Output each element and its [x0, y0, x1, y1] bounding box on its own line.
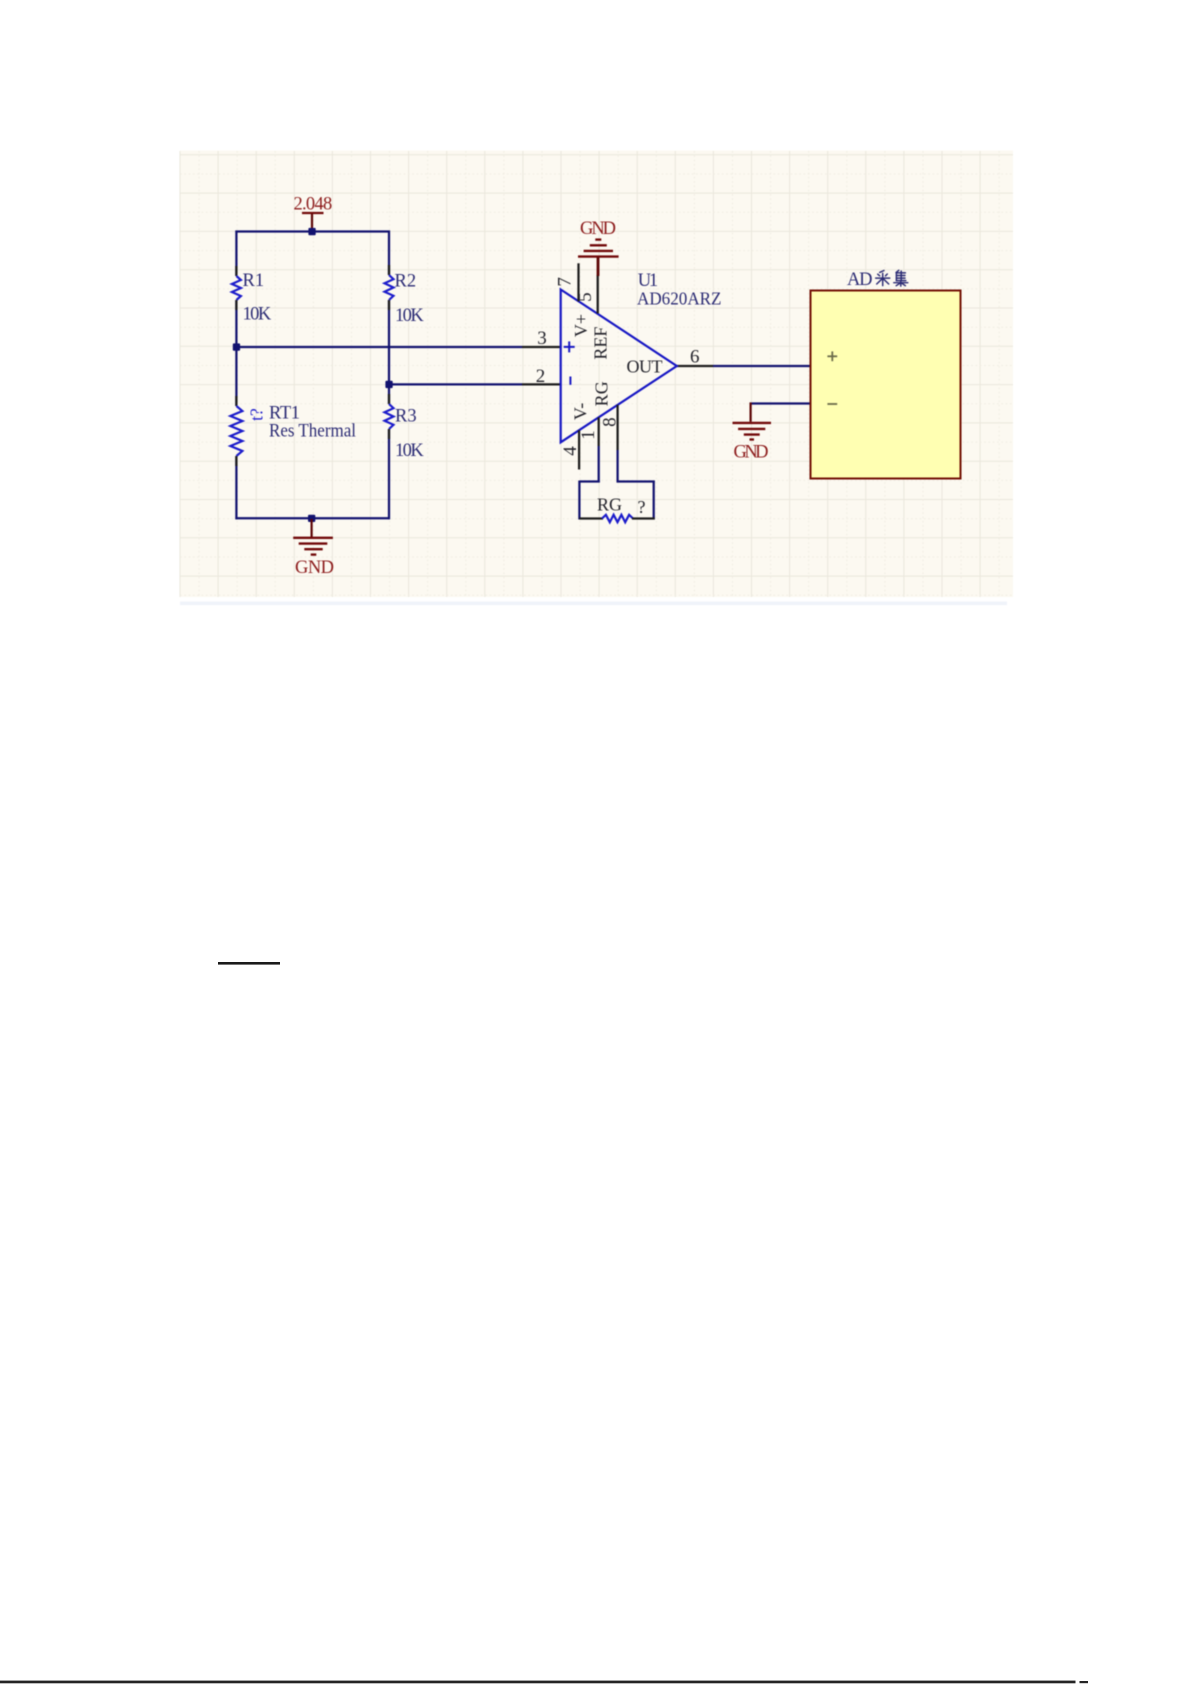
svg-text:t?: t? — [247, 408, 267, 421]
svg-text:Res Thermal: Res Thermal — [269, 422, 356, 442]
svg-text:V-: V- — [571, 403, 591, 420]
svg-text:AD620ARZ: AD620ARZ — [637, 289, 722, 309]
svg-text:R3: R3 — [395, 407, 417, 427]
svg-text:V+: V+ — [571, 314, 591, 337]
svg-text:5: 5 — [575, 292, 596, 302]
svg-text:GND: GND — [734, 443, 769, 463]
svg-text:?: ? — [638, 497, 646, 517]
svg-text:GND: GND — [580, 219, 616, 239]
svg-text:2.048: 2.048 — [294, 195, 333, 215]
svg-text:7: 7 — [555, 277, 576, 287]
svg-text:10K: 10K — [395, 441, 424, 461]
svg-text:4: 4 — [560, 446, 581, 456]
svg-text:OUT: OUT — [627, 357, 663, 377]
svg-text:10K: 10K — [243, 305, 272, 325]
svg-text:RG: RG — [597, 494, 622, 514]
svg-text:6: 6 — [690, 347, 700, 368]
svg-text:GND: GND — [295, 558, 334, 578]
svg-text:8: 8 — [599, 417, 620, 427]
svg-text:REF: REF — [591, 327, 611, 360]
svg-text:1: 1 — [578, 430, 599, 440]
svg-text:AD: AD — [847, 270, 873, 290]
svg-text:RG: RG — [592, 381, 612, 406]
svg-text:2: 2 — [536, 366, 546, 387]
svg-text:RT1: RT1 — [269, 404, 300, 424]
svg-text:R1: R1 — [243, 271, 265, 291]
svg-text:3: 3 — [537, 328, 547, 349]
svg-text:R2: R2 — [395, 271, 417, 291]
svg-text:10K: 10K — [395, 306, 424, 326]
